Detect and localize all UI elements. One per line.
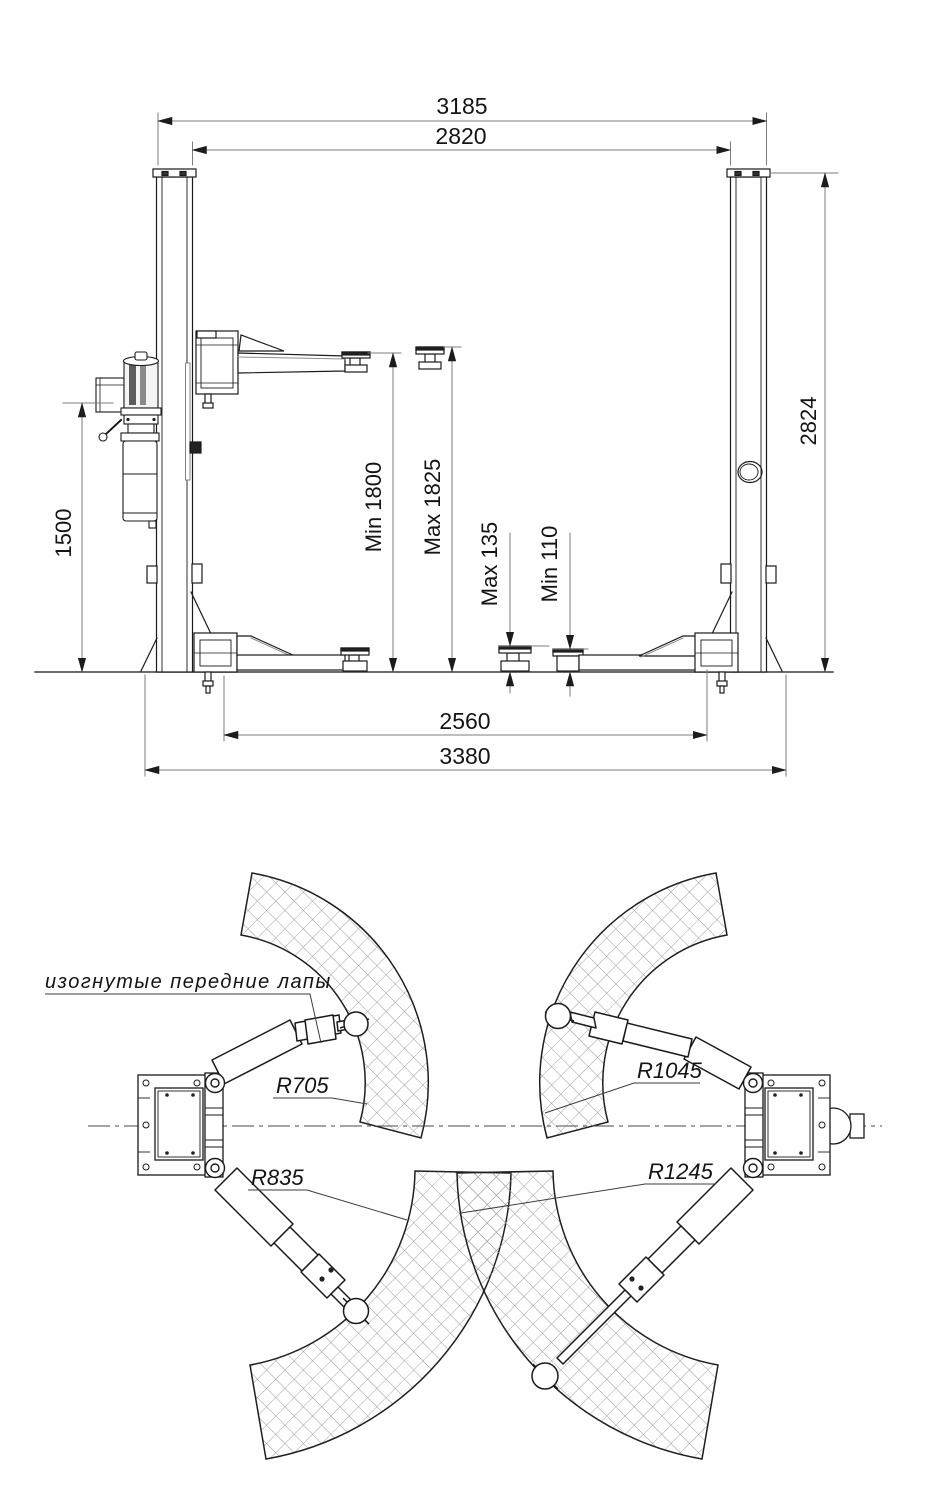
front-arm-sweep-right — [540, 873, 727, 1138]
tank-lid — [121, 433, 159, 441]
top-view: изогнутые передние лапы R705 R835 R1045 … — [45, 873, 882, 1459]
left-gusset-inner — [191, 592, 212, 636]
raised-pad — [342, 352, 370, 372]
right-beam — [579, 655, 697, 670]
label-3380: 3380 — [439, 743, 490, 769]
right-bracket — [766, 566, 776, 583]
pump-flange — [121, 408, 161, 415]
left-bracket — [147, 566, 157, 583]
raised-pad-max-position — [416, 347, 444, 369]
right-gusset-outer — [766, 638, 782, 671]
left-ramp — [237, 636, 295, 656]
lowered-left-arm — [194, 633, 369, 693]
lever-knob — [99, 433, 107, 441]
label-2824: 2824 — [796, 397, 821, 446]
left-rear-arm — [215, 1168, 369, 1324]
left-bracket-2 — [192, 564, 202, 583]
dim-max-1825 — [444, 347, 461, 672]
motor-knob — [135, 352, 147, 360]
right-column — [711, 169, 782, 672]
label-3185: 3185 — [436, 93, 487, 119]
left-gusset-outer — [141, 638, 157, 671]
front-view: 3185 2820 2824 1500 Min 1800 Max 1825 Ma… — [35, 93, 838, 776]
annotation-front-arms: изогнутые передние лапы — [45, 971, 332, 993]
label-2560: 2560 — [439, 708, 490, 734]
power-unit-plan — [850, 1114, 864, 1138]
right-rear-ball — [532, 1363, 558, 1389]
right-front-ball — [546, 1004, 571, 1029]
left-beam — [237, 655, 345, 670]
technical-drawing-page: 3185 2820 2824 1500 Min 1800 Max 1825 Ma… — [0, 0, 932, 1500]
label-r835: R835 — [251, 1165, 304, 1190]
r705-leader — [273, 1098, 367, 1104]
label-r1245: R1245 — [648, 1159, 714, 1184]
label-1500: 1500 — [51, 509, 76, 558]
oil-tank — [123, 441, 157, 521]
lock-block — [190, 442, 201, 453]
rear-arm-sweep-right — [457, 1171, 718, 1459]
raised-arm-beam — [238, 353, 345, 373]
pad-max-135 — [499, 646, 531, 671]
right-post-plan — [745, 1073, 864, 1177]
release-lever — [106, 420, 121, 434]
label-r705: R705 — [276, 1073, 329, 1098]
lift-drawing-canvas: 3185 2820 2824 1500 Min 1800 Max 1825 Ma… — [0, 0, 932, 1500]
right-bracket-2 — [721, 564, 731, 583]
label-min-110: Min 110 — [537, 526, 562, 603]
ramp-flap-raised — [239, 335, 284, 351]
right-column-cap — [727, 169, 770, 177]
valve-block — [128, 424, 154, 433]
label-max-1825: Max 1825 — [420, 459, 445, 556]
right-gusset-inner — [711, 592, 732, 636]
right-anchor-pin — [717, 672, 727, 693]
left-anchor-pin — [203, 672, 213, 693]
left-column-cap — [153, 169, 196, 177]
label-max-135: Max 135 — [477, 522, 502, 606]
right-ramp — [639, 636, 697, 656]
label-r1045: R1045 — [637, 1058, 703, 1083]
label-min-1800: Min 1800 — [361, 462, 386, 553]
lowered-right-arm — [579, 633, 738, 693]
left-front-ball — [344, 1012, 368, 1036]
label-2820: 2820 — [435, 123, 486, 149]
carriage-guide-strip — [186, 363, 191, 480]
raised-arm-assembly — [196, 331, 444, 408]
left-rear-ball — [344, 1299, 369, 1324]
tank-plug — [149, 521, 156, 528]
power-unit — [96, 352, 161, 528]
